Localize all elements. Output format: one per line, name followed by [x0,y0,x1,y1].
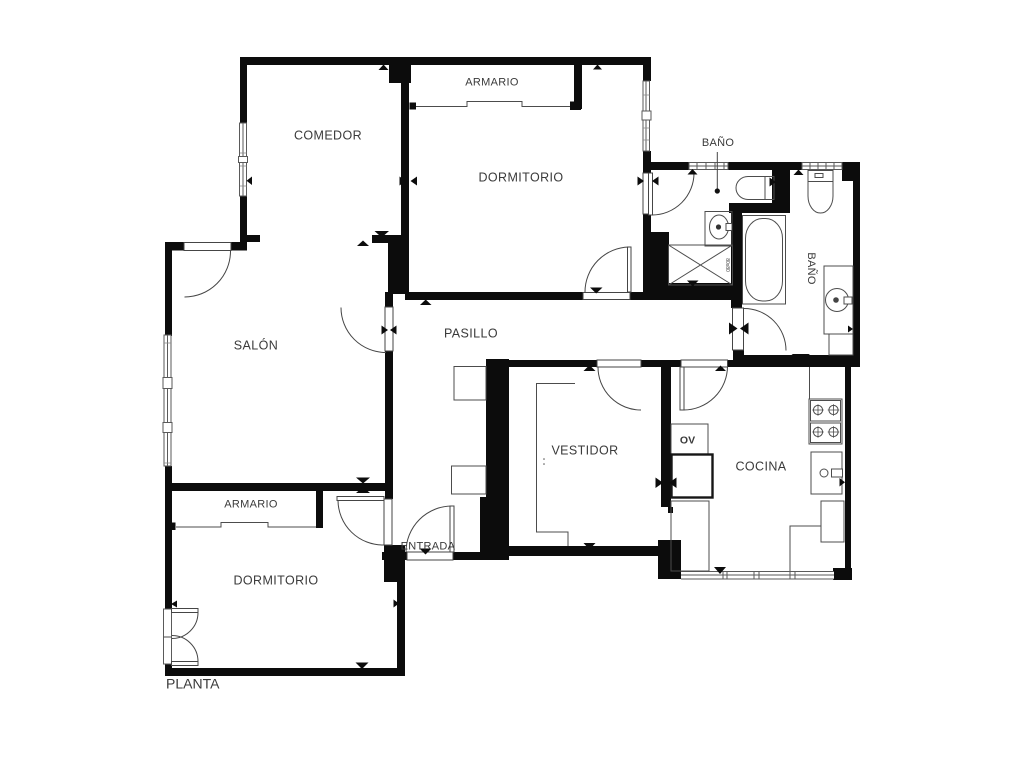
svg-text:PASILLO: PASILLO [444,327,498,341]
svg-text:ENTRADA: ENTRADA [401,541,456,553]
svg-text:DORMITORIO: DORMITORIO [233,574,318,588]
svg-text:SALÓN: SALÓN [234,338,278,353]
svg-text:BAÑO: BAÑO [702,136,735,149]
svg-text:OV: OV [680,435,695,447]
svg-text:BAÑO: BAÑO [805,252,818,285]
svg-text:VESTIDOR: VESTIDOR [551,444,618,458]
svg-text:DORMITORIO: DORMITORIO [478,171,563,185]
svg-text:80x80: 80x80 [724,258,730,272]
svg-text:ARMARIO: ARMARIO [465,77,519,89]
svg-text:COCINA: COCINA [735,460,786,474]
svg-text:COMEDOR: COMEDOR [294,129,362,143]
svg-text:ARMARIO: ARMARIO [224,499,278,511]
svg-text:PLANTA: PLANTA [166,676,220,692]
